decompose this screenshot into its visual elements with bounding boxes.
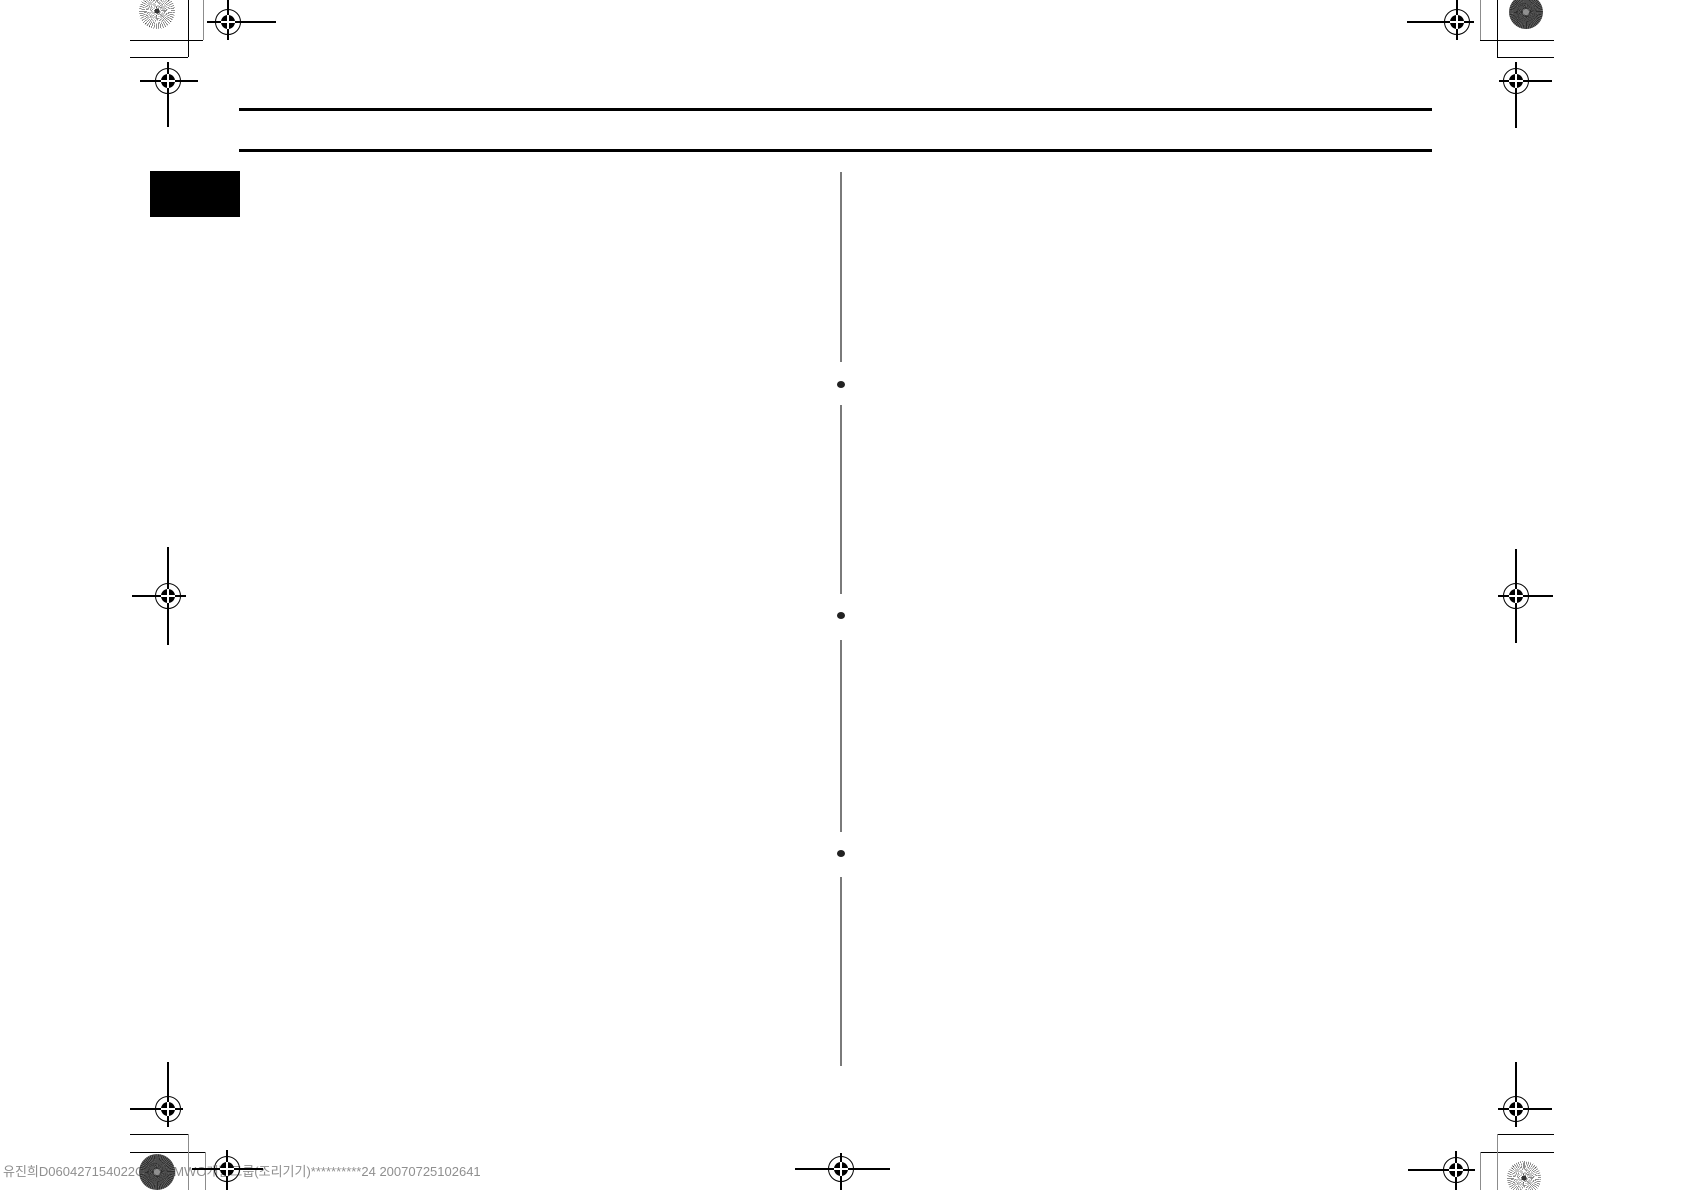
- pinwheel-registration-circle: [139, 1154, 175, 1190]
- crop-mark-line: [1480, 0, 1481, 40]
- crop-mark-line: [1497, 0, 1498, 57]
- column-divider-segment: [840, 405, 842, 594]
- crop-mark-line: [205, 1152, 206, 1190]
- mark-core-cross-v: [1515, 1102, 1517, 1116]
- footer-document-id: 유진희D060427154022C1: [3, 1163, 152, 1180]
- bullet-marker: [837, 850, 845, 857]
- crop-mark-line: [130, 1134, 188, 1135]
- mark-core-cross-v: [226, 1162, 228, 1176]
- mark-core-cross-v: [1456, 15, 1458, 29]
- crop-mark-line: [130, 1152, 205, 1153]
- column-divider-segment: [840, 640, 842, 832]
- scanned-manual-page: 유진희D060427154022C1 2MWO개발그룹(조리기기)*******…: [0, 0, 1684, 1190]
- crop-mark-line: [1480, 40, 1554, 41]
- header-rule-top: [239, 108, 1432, 111]
- crop-mark-line: [130, 40, 203, 41]
- mark-core-cross-v: [1515, 74, 1517, 88]
- crop-mark-line: [1497, 57, 1554, 58]
- crop-mark-line: [1480, 1152, 1554, 1153]
- column-divider-segment: [840, 877, 842, 1066]
- crop-mark-line: [1480, 1152, 1481, 1190]
- crop-mark-line: [203, 0, 204, 40]
- pinwheel-registration-circle: [1509, 0, 1543, 29]
- mark-core-cross-v: [1455, 1163, 1457, 1177]
- crop-mark-line: [130, 57, 188, 58]
- pinwheel-registration-circle: [1507, 1161, 1541, 1190]
- bullet-marker: [837, 381, 845, 388]
- mark-core-cross-v: [167, 589, 169, 603]
- mark-core-cross-v: [167, 1102, 169, 1116]
- mark-core-cross-v: [167, 74, 169, 88]
- mark-core-cross-v: [227, 15, 229, 29]
- column-divider-segment: [840, 172, 842, 362]
- footer-group-stamp: 2MWO개발그룹(조리기기)**********24 2007072510264…: [166, 1163, 481, 1180]
- bullet-marker: [837, 612, 845, 619]
- mark-core-cross-v: [1515, 589, 1517, 603]
- header-rule-bottom: [239, 149, 1432, 152]
- crop-mark-line: [188, 0, 189, 57]
- crop-mark-line: [1497, 1134, 1554, 1135]
- section-tab-marker: [150, 171, 240, 217]
- crop-mark-line: [1497, 1134, 1498, 1190]
- pinwheel-registration-circle: [139, 0, 175, 29]
- mark-core-cross-v: [840, 1162, 842, 1176]
- crop-mark-line: [188, 1134, 189, 1190]
